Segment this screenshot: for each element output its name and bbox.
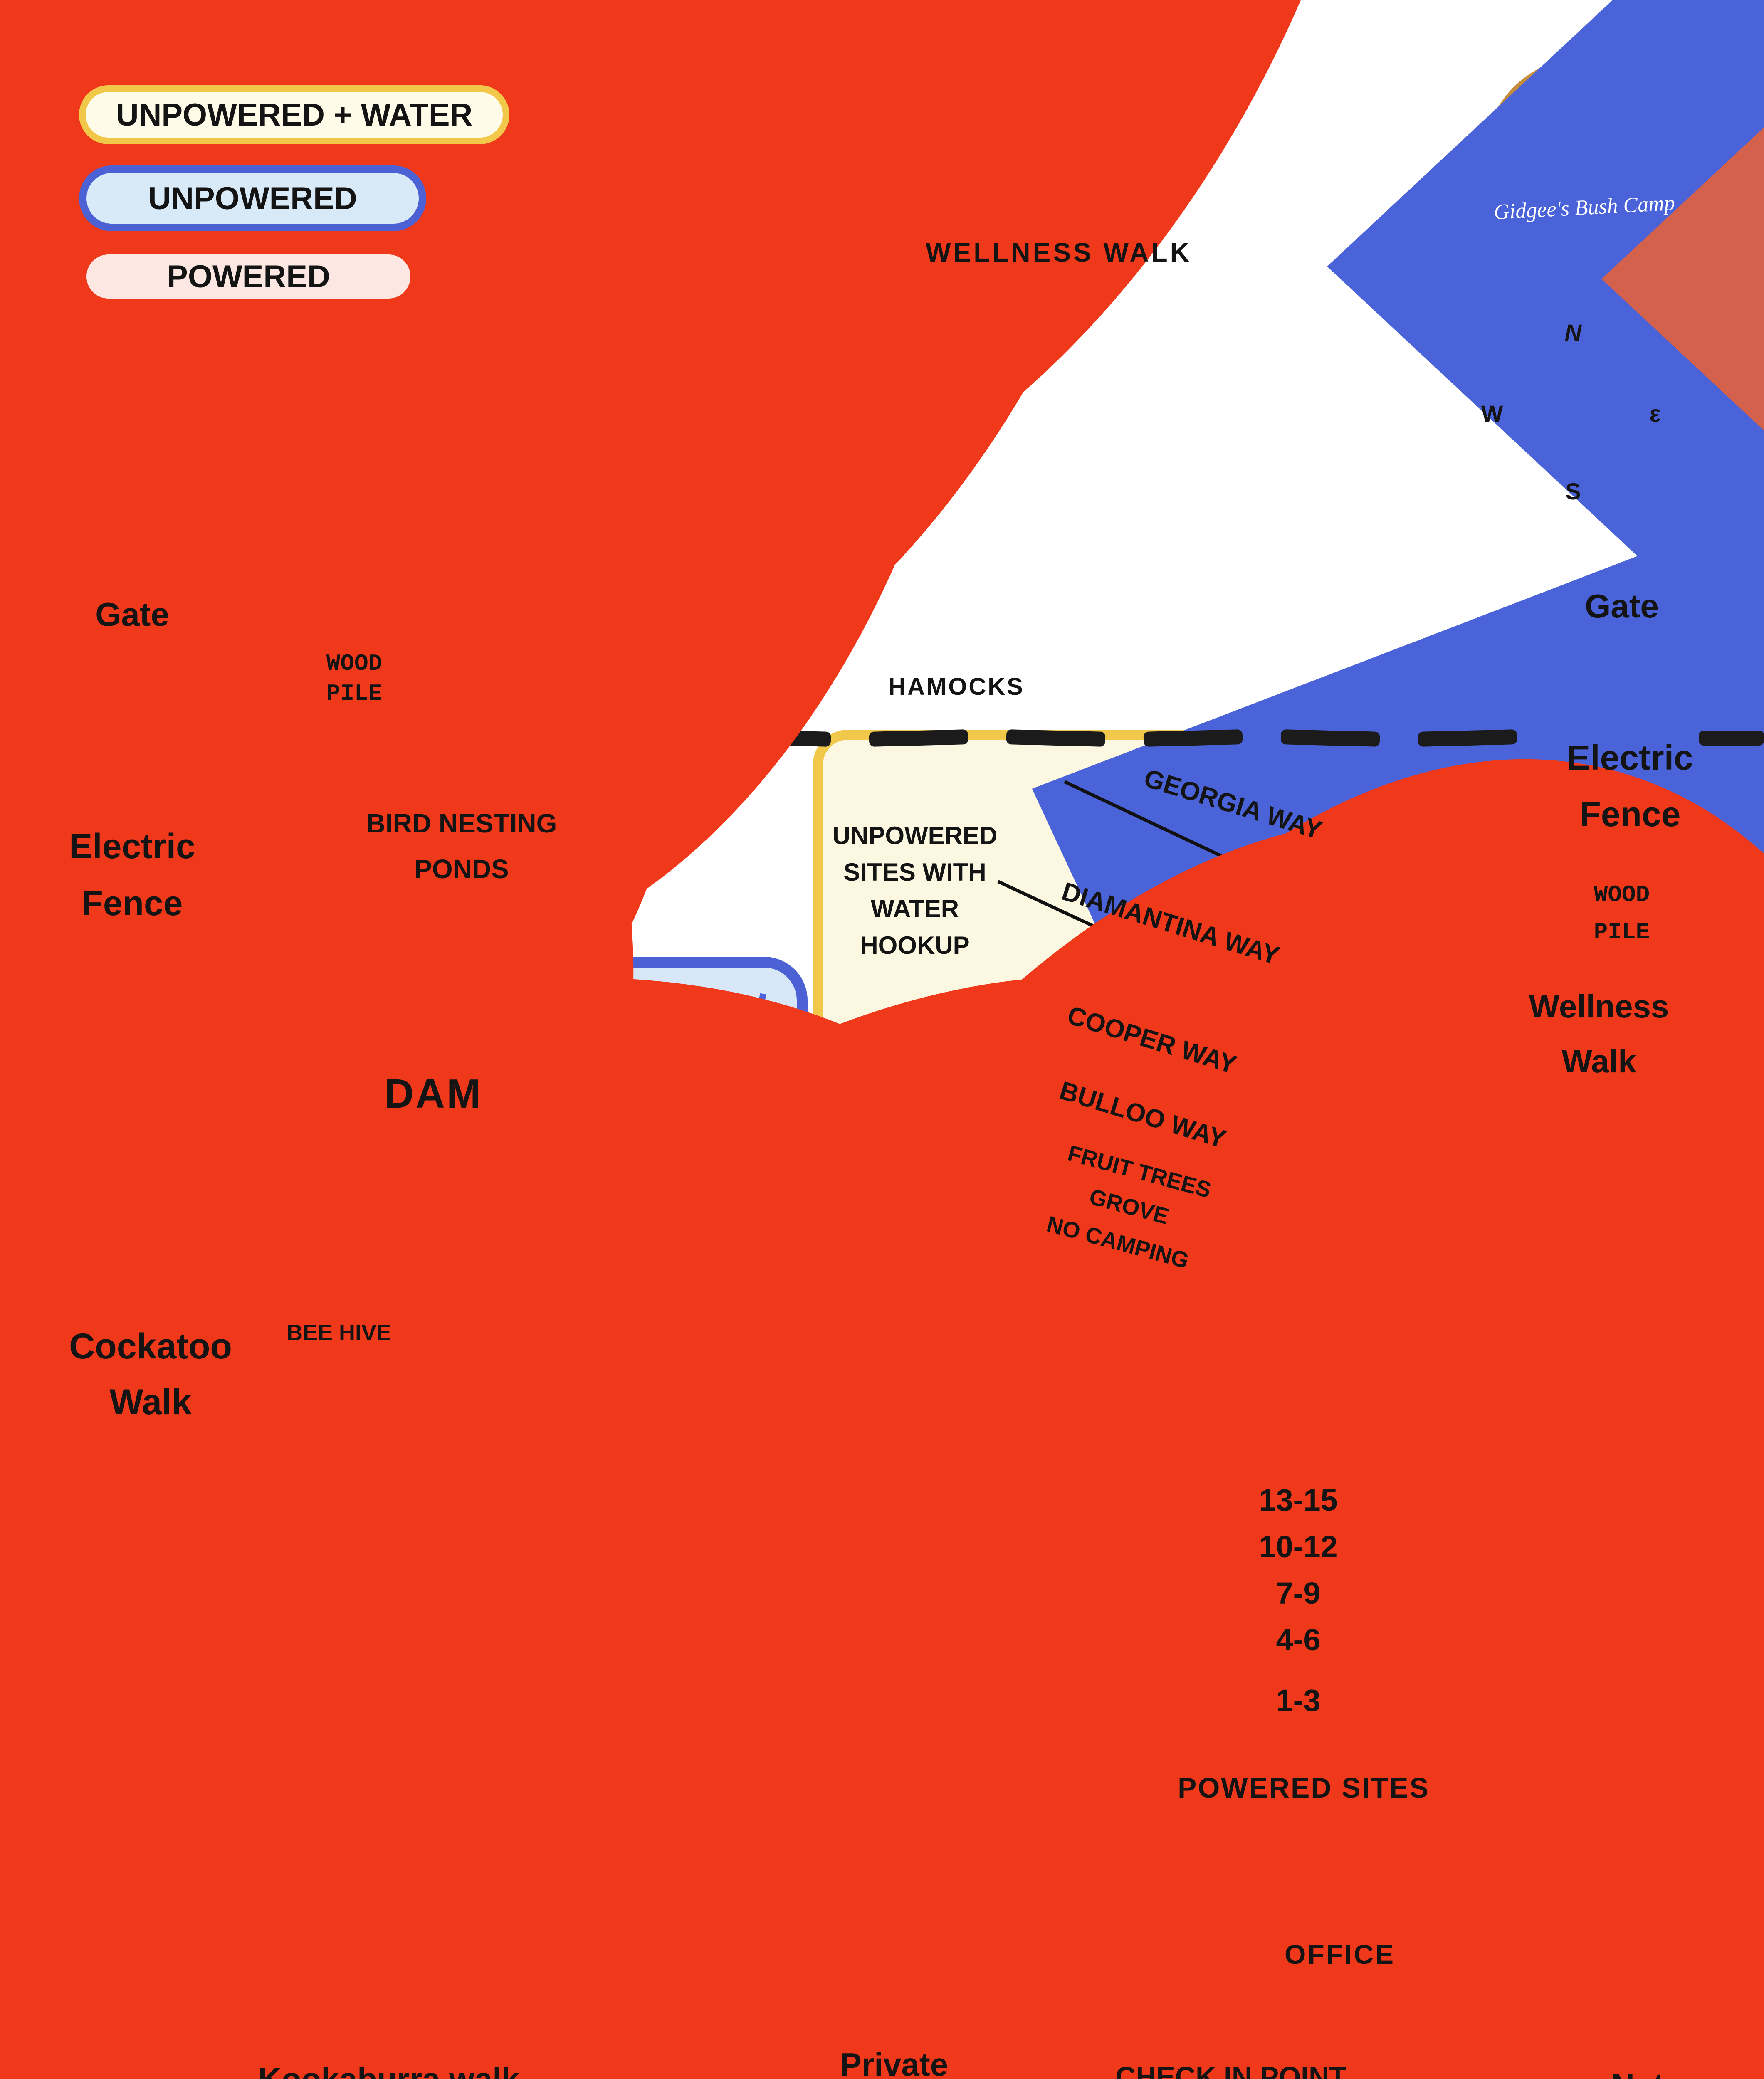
site-range-label: 13-15 bbox=[1259, 1485, 1337, 1516]
compass-w: W bbox=[1481, 402, 1503, 425]
legend-powered: POWERED bbox=[79, 247, 418, 306]
unpowered-desc4: HOOKUP bbox=[860, 933, 969, 958]
wood-pile-right-label: WOOD bbox=[1594, 883, 1650, 906]
legend-label: POWERED bbox=[167, 259, 330, 295]
animal-feeding-label: ANIMAL bbox=[1556, 1962, 1658, 1987]
legend-unpowered-water: UNPOWERED + WATER bbox=[79, 85, 509, 144]
hamocks-label: HAMOCKS bbox=[888, 675, 1025, 699]
private-residence-label: Private bbox=[840, 2048, 948, 2079]
cockatoo-walk-label2: Walk bbox=[109, 1384, 192, 1420]
kookaburra-walk-label: Kookaburra walk bbox=[258, 2063, 520, 2079]
compass-n: N bbox=[1565, 321, 1581, 344]
camp-kitchen-label: Camp bbox=[815, 1599, 891, 1626]
legend-label: UNPOWERED + WATER bbox=[116, 97, 473, 133]
electric-fence-right-label2: Fence bbox=[1580, 797, 1681, 832]
office-label: OFFICE bbox=[1285, 1941, 1395, 1968]
site-range-label: 10-12 bbox=[1259, 1531, 1337, 1562]
site-range-label: 1-3 bbox=[1276, 1685, 1321, 1716]
check-in-label: CHECK IN POINT bbox=[1115, 2063, 1346, 2079]
campground-map: UNPOWERED + WATER UNPOWERED POWERED WELL… bbox=[0, 0, 1764, 2079]
wellness-walk-title: WELLNESS WALK bbox=[926, 239, 1192, 266]
ash-pit-label: Ash Pit bbox=[779, 1752, 919, 1793]
gate-right-label: Gate bbox=[1585, 590, 1659, 623]
compass-e: ε bbox=[1650, 402, 1661, 425]
unpowered-desc3: WATER bbox=[871, 896, 959, 921]
bee-hive-label: BEE HIVE bbox=[287, 1321, 391, 1344]
electric-fence-left-label2: Fence bbox=[82, 886, 183, 921]
camp-kitchen-label2: Kitchen bbox=[803, 1644, 904, 1672]
host-site-label: HOST SITE bbox=[893, 1807, 1020, 1831]
legend-label: UNPOWERED bbox=[148, 180, 357, 217]
cockatoo-walk-label: Cockatoo bbox=[69, 1328, 232, 1364]
site-range-label: 4-6 bbox=[1276, 1625, 1321, 1655]
unpowered-desc2: SITES WITH bbox=[843, 860, 986, 885]
wood-pile-left-label2: PILE bbox=[326, 682, 382, 705]
nature-walk-label: Nature bbox=[1611, 2069, 1716, 2079]
animal-feeding-label2: FEEDING bbox=[1549, 2000, 1666, 2025]
wood-pile-left-label: WOOD bbox=[326, 652, 382, 675]
wood-pile-right-label2: PILE bbox=[1594, 921, 1650, 944]
gate-left-label: Gate bbox=[95, 598, 169, 631]
bird-ponds-label: BIRD NESTING bbox=[366, 810, 557, 837]
showers-label: SHOWERS & bbox=[1023, 1807, 1172, 1831]
site-range-label: 7-9 bbox=[1276, 1578, 1321, 1609]
electric-fence-right-label: Electric bbox=[1567, 740, 1693, 775]
showers-label2: TOILETS bbox=[1047, 1847, 1149, 1872]
wellness-walk-label2: Walk bbox=[1561, 1045, 1636, 1077]
compass-s: S bbox=[1565, 480, 1581, 503]
legend-unpowered: UNPOWERED bbox=[79, 165, 426, 231]
electric-fence-left-label: Electric bbox=[69, 829, 195, 864]
event-area-label: EVENT AREA bbox=[1172, 1353, 1386, 1383]
unpowered-desc: UNPOWERED bbox=[833, 823, 998, 848]
wellness-walk-label: Wellness bbox=[1529, 990, 1669, 1022]
dam-label: DAM bbox=[384, 1073, 482, 1114]
powered-sites-label: POWERED SITES bbox=[1178, 1774, 1430, 1802]
bird-ponds-label2: PONDS bbox=[414, 856, 509, 882]
